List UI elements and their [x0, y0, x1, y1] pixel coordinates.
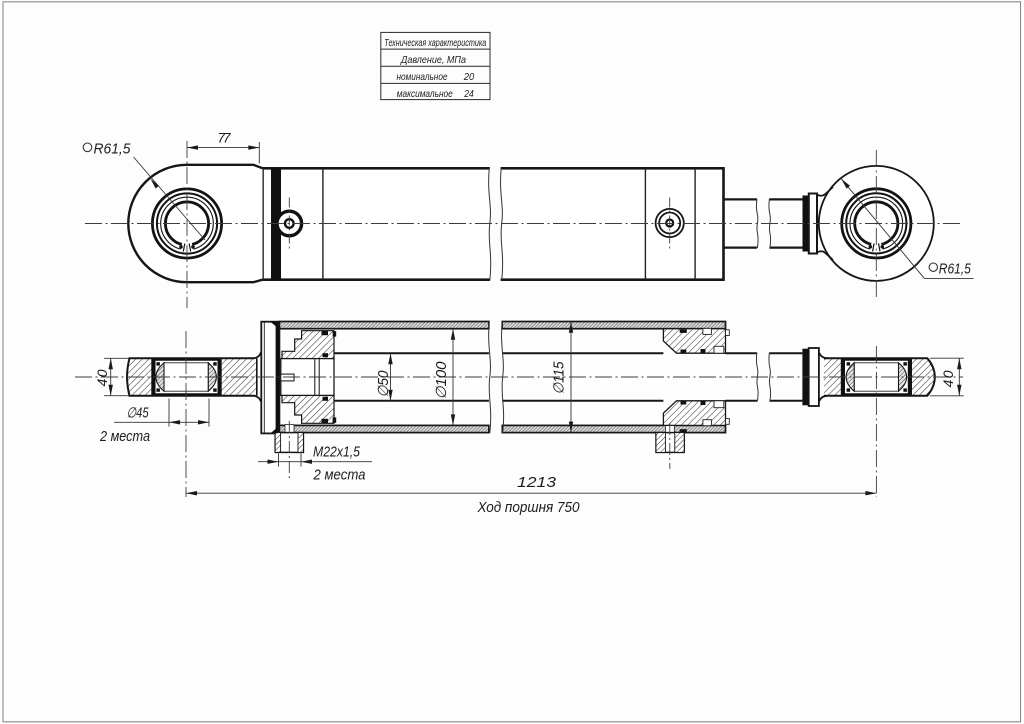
svg-text:40: 40 [94, 369, 110, 386]
svg-text:24: 24 [463, 88, 473, 100]
svg-text:M22x1,5: M22x1,5 [313, 444, 361, 460]
svg-text:максимальное: максимальное [397, 88, 453, 100]
svg-text:40: 40 [940, 370, 956, 387]
svg-text:1213: 1213 [517, 475, 556, 491]
svg-text:20: 20 [463, 71, 475, 83]
svg-text:R61,5: R61,5 [94, 142, 132, 158]
svg-text:номинальное: номинальное [397, 71, 448, 83]
svg-text:Ход поршня 750: Ход поршня 750 [477, 500, 580, 516]
svg-text:Давление, МПа: Давление, МПа [400, 54, 466, 66]
svg-text:∅45: ∅45 [127, 406, 150, 422]
svg-text:∅50: ∅50 [376, 371, 392, 398]
svg-text:∅115: ∅115 [552, 361, 568, 395]
svg-text:R61,5: R61,5 [939, 262, 972, 278]
svg-text:2 места: 2 места [313, 467, 366, 483]
svg-text:Техническая характеристика: Техническая характеристика [384, 38, 486, 49]
svg-text:2 места: 2 места [99, 429, 150, 445]
svg-text:77: 77 [218, 130, 231, 145]
svg-text:∅100: ∅100 [434, 362, 450, 400]
